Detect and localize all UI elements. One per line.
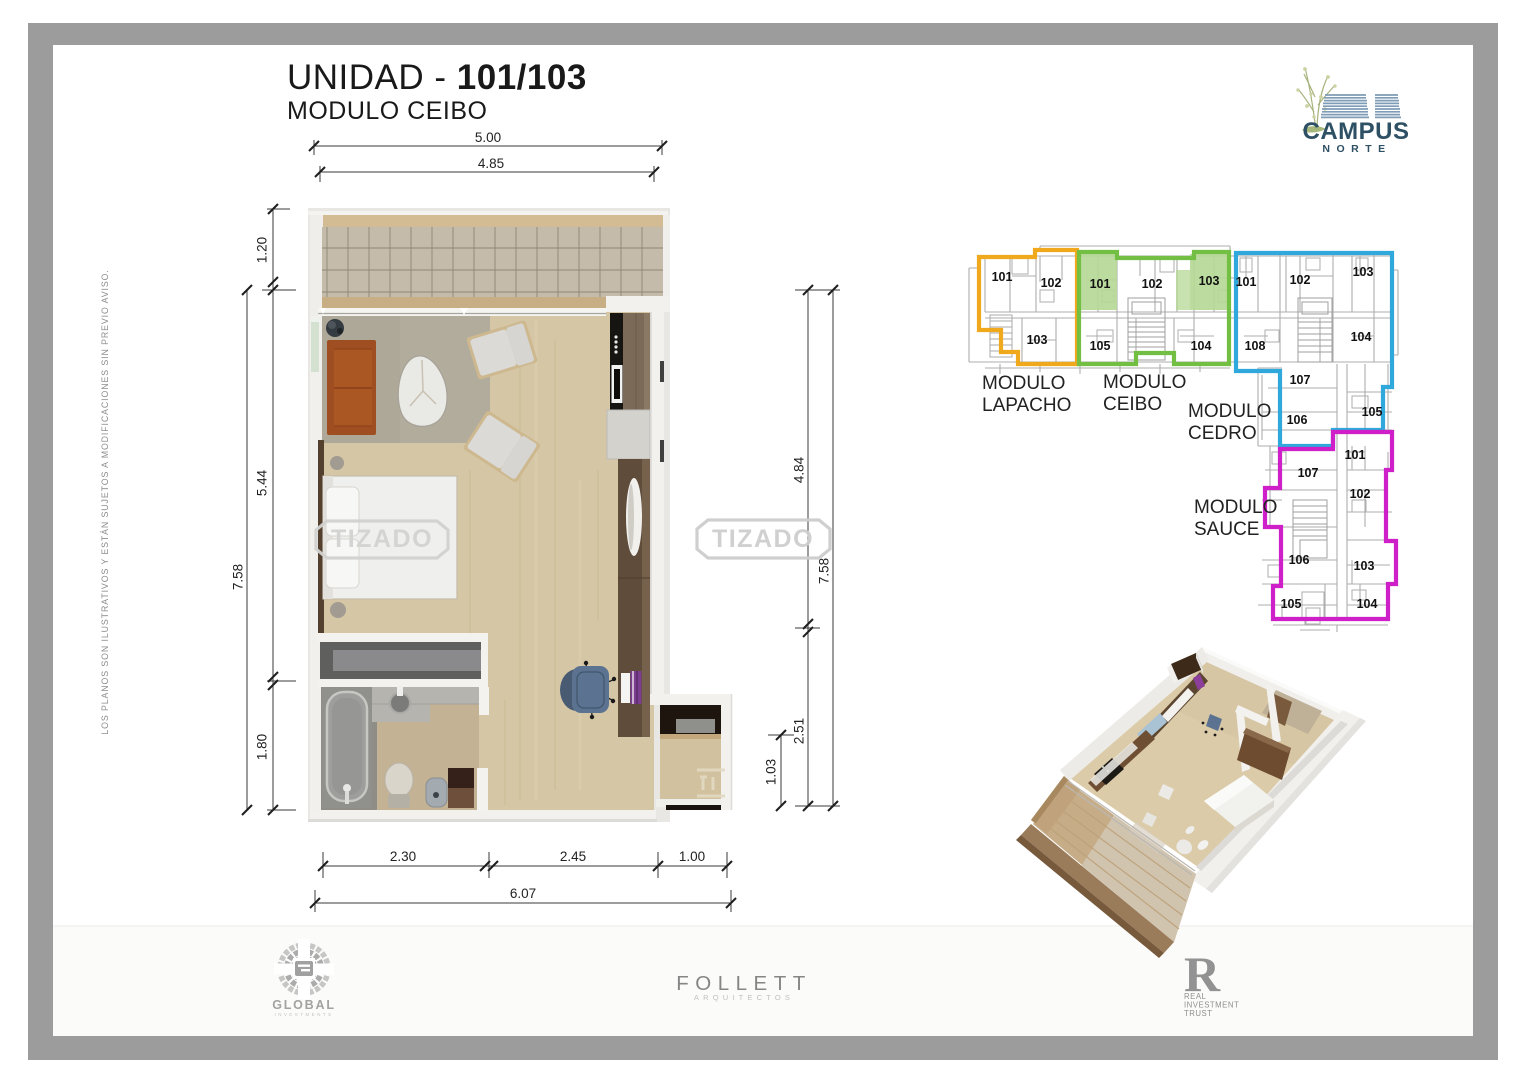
svg-text:MODULO CEIBO: MODULO CEIBO xyxy=(287,97,487,125)
svg-text:2.45: 2.45 xyxy=(560,849,586,864)
svg-text:7.58: 7.58 xyxy=(817,558,832,584)
svg-text:1.03: 1.03 xyxy=(764,759,779,785)
svg-text:5.44: 5.44 xyxy=(255,469,270,496)
svg-text:101: 101 xyxy=(1090,277,1111,291)
svg-text:4.85: 4.85 xyxy=(478,156,504,171)
svg-text:102: 102 xyxy=(1142,277,1163,291)
svg-text:TIZADO: TIZADO xyxy=(331,525,433,553)
svg-text:CEIBO: CEIBO xyxy=(1103,394,1162,415)
svg-text:2.30: 2.30 xyxy=(390,849,416,864)
svg-text:TIZADO: TIZADO xyxy=(712,525,814,553)
svg-text:MODULO: MODULO xyxy=(1194,497,1277,518)
svg-text:7.58: 7.58 xyxy=(231,564,246,590)
svg-text:104: 104 xyxy=(1357,597,1378,611)
svg-text:102: 102 xyxy=(1290,273,1311,287)
svg-text:104: 104 xyxy=(1351,330,1372,344)
svg-text:103: 103 xyxy=(1354,559,1375,573)
svg-text:103: 103 xyxy=(1199,274,1220,288)
svg-text:105: 105 xyxy=(1362,405,1383,419)
svg-text:106: 106 xyxy=(1287,413,1308,427)
svg-text:INVESTMENTS: INVESTMENTS xyxy=(274,1012,333,1017)
svg-text:CAMPUS: CAMPUS xyxy=(1302,118,1409,145)
svg-text:101: 101 xyxy=(992,270,1013,284)
svg-text:102: 102 xyxy=(1350,487,1371,501)
svg-text:LAPACHO: LAPACHO xyxy=(982,395,1071,416)
svg-text:NORTE: NORTE xyxy=(1322,143,1391,155)
svg-text:104: 104 xyxy=(1191,339,1212,353)
svg-text:ARQUITECTOS: ARQUITECTOS xyxy=(694,993,794,1002)
svg-text:105: 105 xyxy=(1281,597,1302,611)
svg-text:UNIDAD - 101/103: UNIDAD - 101/103 xyxy=(287,58,587,97)
svg-text:CEDRO: CEDRO xyxy=(1188,423,1257,444)
svg-text:103: 103 xyxy=(1353,265,1374,279)
svg-text:1.20: 1.20 xyxy=(255,237,270,263)
svg-text:106: 106 xyxy=(1289,553,1310,567)
svg-text:102: 102 xyxy=(1041,276,1062,290)
svg-text:108: 108 xyxy=(1245,339,1266,353)
svg-text:5.00: 5.00 xyxy=(475,130,501,145)
svg-text:6.07: 6.07 xyxy=(510,886,536,901)
svg-text:MODULO: MODULO xyxy=(1188,401,1271,422)
svg-text:MODULO: MODULO xyxy=(982,373,1065,394)
svg-text:2.51: 2.51 xyxy=(792,718,807,744)
svg-text:TRUST: TRUST xyxy=(1184,1009,1213,1018)
svg-text:101: 101 xyxy=(1236,275,1257,289)
svg-text:101: 101 xyxy=(1345,448,1366,462)
svg-text:103: 103 xyxy=(1027,333,1048,347)
svg-text:107: 107 xyxy=(1290,373,1311,387)
svg-text:4.84: 4.84 xyxy=(792,456,807,483)
svg-text:SAUCE: SAUCE xyxy=(1194,519,1259,540)
svg-text:GLOBAL: GLOBAL xyxy=(272,998,336,1012)
svg-text:1.00: 1.00 xyxy=(679,849,705,864)
svg-text:107: 107 xyxy=(1298,466,1319,480)
svg-text:LOS PLANOS SON ILUSTRATIVOS Y: LOS PLANOS SON ILUSTRATIVOS Y ESTÁN SUJE… xyxy=(100,269,110,734)
svg-text:105: 105 xyxy=(1090,339,1111,353)
svg-text:MODULO: MODULO xyxy=(1103,372,1186,393)
svg-text:1.80: 1.80 xyxy=(255,734,270,760)
svg-text:FOLLETT: FOLLETT xyxy=(676,972,812,995)
